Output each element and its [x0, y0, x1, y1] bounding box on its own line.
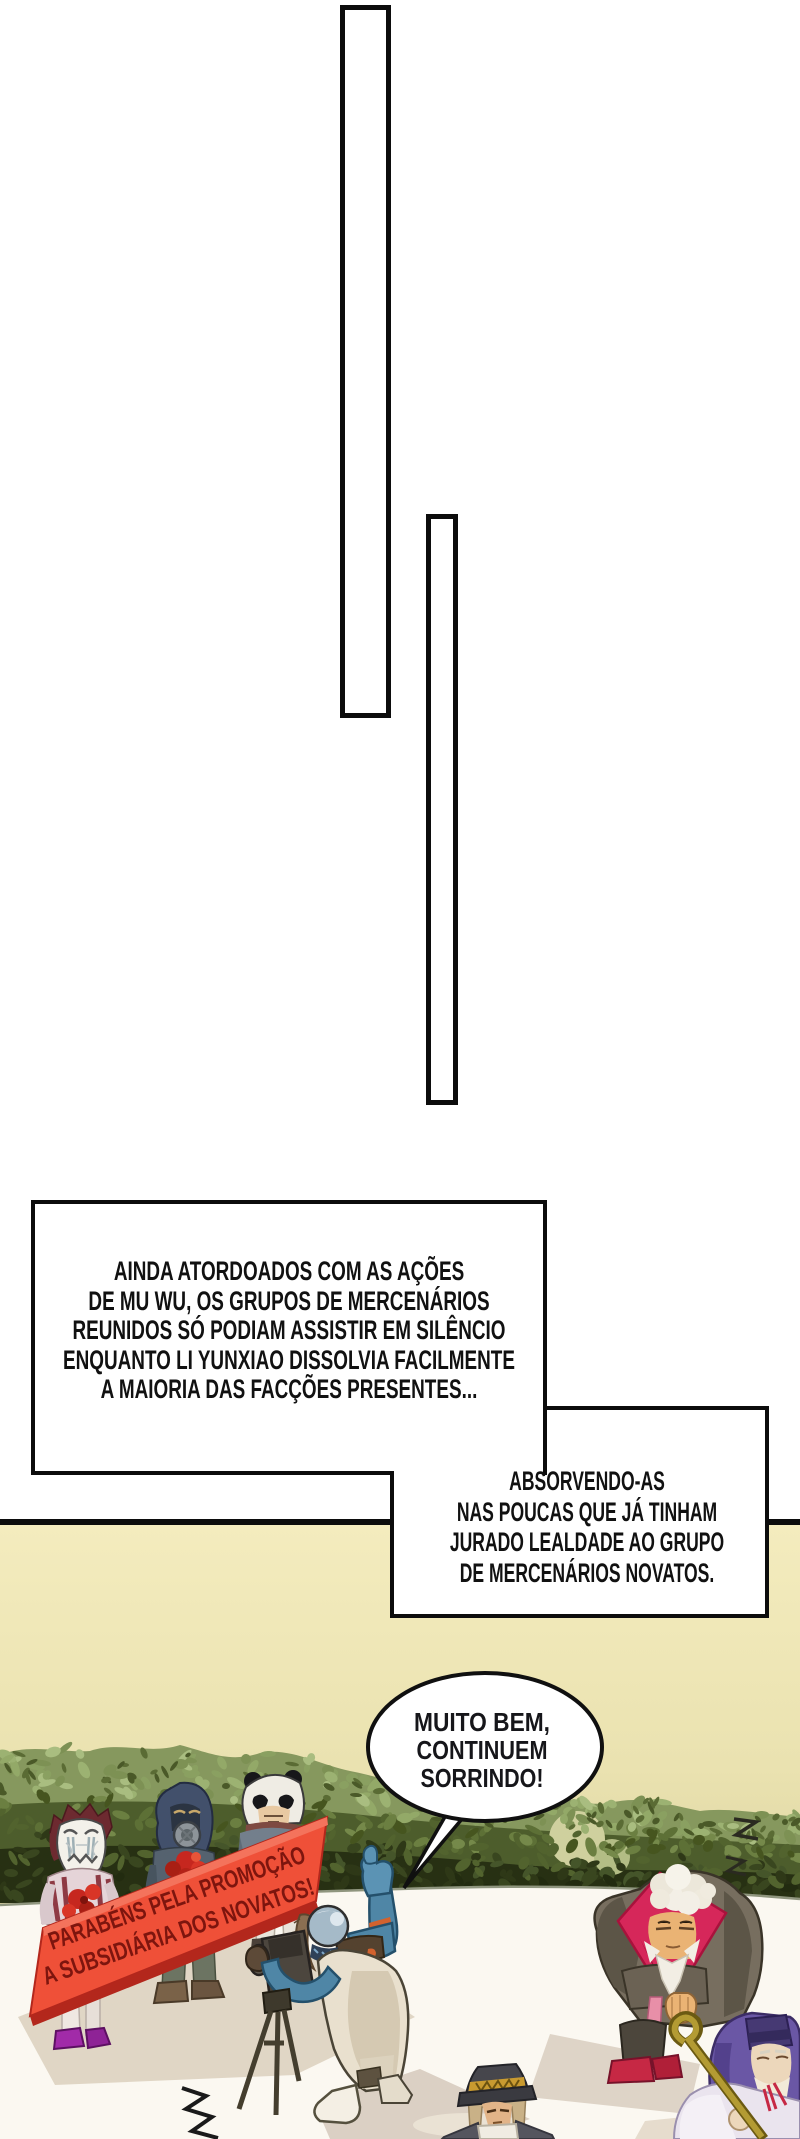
svg-text:MUITO BEM,: MUITO BEM,: [414, 1707, 550, 1737]
svg-text:CONTINUEM: CONTINUEM: [417, 1735, 548, 1765]
svg-text:SORRINDO!: SORRINDO!: [421, 1763, 544, 1793]
